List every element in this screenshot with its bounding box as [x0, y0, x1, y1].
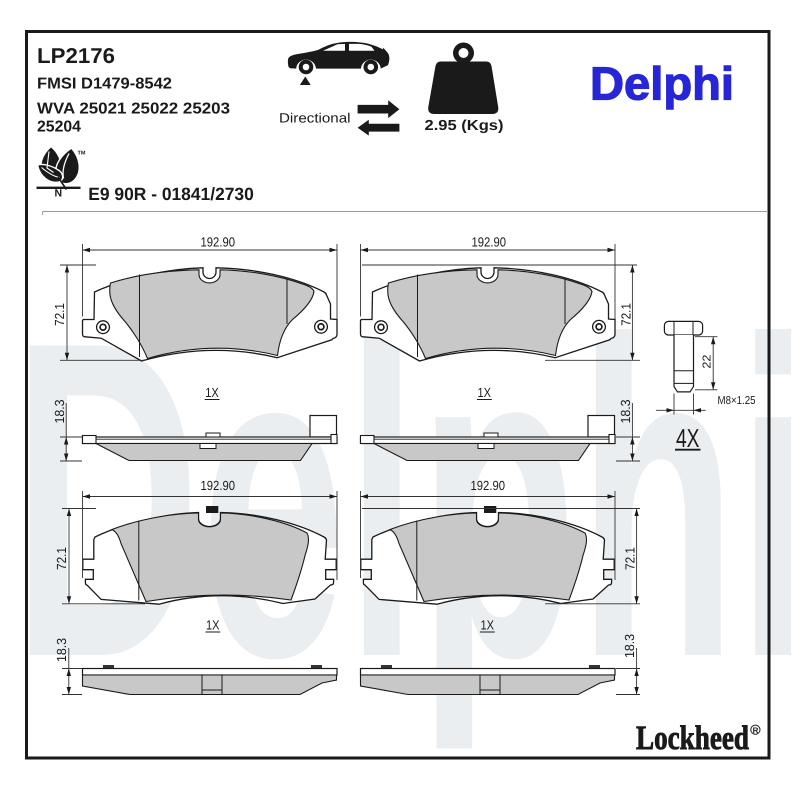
svg-text:TM: TM — [78, 151, 86, 157]
svg-text:192.90: 192.90 — [472, 235, 507, 250]
svg-text:1X: 1X — [205, 385, 219, 400]
svg-text:WVA 25021 25022 25203: WVA 25021 25022 25203 — [37, 101, 230, 118]
svg-text:192.90: 192.90 — [471, 478, 506, 493]
svg-text:1X: 1X — [206, 617, 220, 632]
svg-text:FMSI D1479-8542: FMSI D1479-8542 — [37, 76, 172, 93]
svg-text:72.1: 72.1 — [52, 303, 67, 326]
svg-text:18.3: 18.3 — [54, 638, 69, 662]
svg-text:72.1: 72.1 — [619, 303, 634, 326]
svg-text:72.1: 72.1 — [623, 547, 638, 570]
svg-text:M8×1.25: M8×1.25 — [718, 395, 756, 407]
svg-text:22: 22 — [702, 355, 714, 369]
svg-text:4X: 4X — [676, 423, 700, 453]
svg-text:72.1: 72.1 — [54, 547, 69, 570]
svg-text:2.95 (Kgs): 2.95 (Kgs) — [425, 118, 504, 134]
svg-text:Directional: Directional — [279, 111, 351, 126]
svg-text:LP2176: LP2176 — [37, 44, 115, 68]
svg-text:18.3: 18.3 — [622, 634, 637, 658]
svg-text:192.90: 192.90 — [201, 478, 236, 493]
svg-text:1X: 1X — [481, 617, 495, 632]
svg-text:18.3: 18.3 — [618, 400, 633, 424]
svg-text:25204: 25204 — [37, 119, 81, 136]
svg-text:E9 90R - 01841/2730: E9 90R - 01841/2730 — [88, 184, 254, 204]
svg-text:R: R — [753, 726, 759, 735]
svg-text:18.3: 18.3 — [52, 400, 67, 424]
svg-text:192.90: 192.90 — [201, 235, 236, 250]
svg-text:1X: 1X — [478, 385, 492, 400]
svg-text:N: N — [55, 188, 63, 200]
svg-text:Lockheed: Lockheed — [636, 720, 749, 757]
svg-text:Delphi: Delphi — [590, 57, 734, 109]
